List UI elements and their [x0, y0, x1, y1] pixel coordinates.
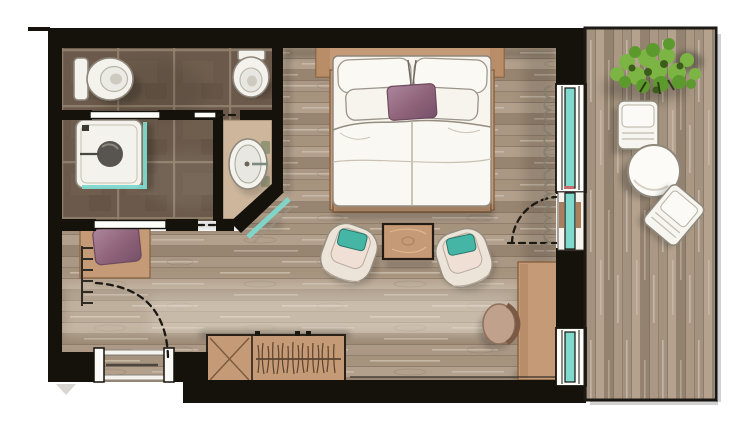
sliding-door-leaf-lower: [94, 221, 166, 229]
window-lower: [556, 328, 586, 386]
balcony-door-leaf: [565, 193, 575, 249]
bench-pillow: [92, 225, 142, 266]
window-upper: [556, 84, 586, 192]
floor-plan-canvas: [0, 0, 754, 435]
wardrobe: [207, 331, 345, 383]
shower: [76, 120, 154, 190]
coffee-table: [383, 224, 433, 268]
door-jamb: [94, 348, 104, 382]
wall-bathroom-divider: [213, 110, 223, 221]
shower-head-icon: [82, 125, 89, 131]
floor-light-band-core: [150, 295, 510, 331]
plan-marker-triangle: [56, 384, 76, 395]
wall-bathroom-right: [272, 48, 283, 192]
bed: [316, 47, 504, 220]
door-jamb: [164, 348, 174, 382]
wall-top: [48, 28, 586, 48]
floor-plan: [0, 0, 754, 435]
wall-bottom: [190, 380, 586, 403]
wall-left: [48, 28, 62, 382]
accent-pillow: [387, 83, 437, 120]
sliding-door-leaf-upper: [90, 112, 160, 119]
